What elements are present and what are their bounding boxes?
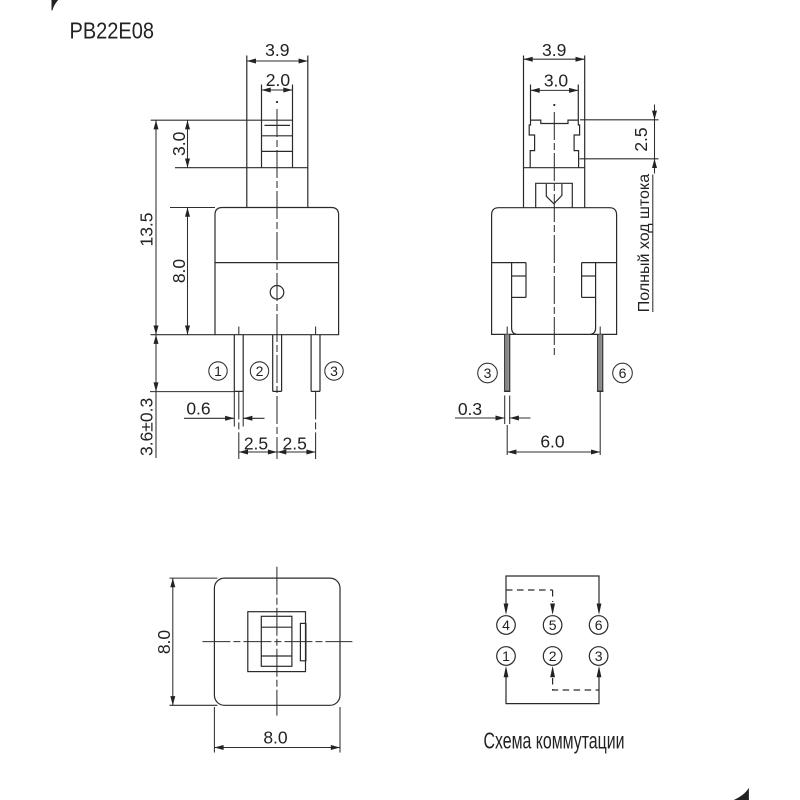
svg-text:6: 6 [619, 365, 627, 381]
svg-text:4: 4 [502, 617, 510, 633]
svg-text:1: 1 [502, 648, 510, 664]
svg-text:3.0: 3.0 [169, 131, 189, 156]
svg-text:3.9: 3.9 [265, 40, 289, 60]
svg-text:3.6±0.3: 3.6±0.3 [136, 398, 156, 456]
svg-text:PB22E08: PB22E08 [70, 18, 155, 44]
svg-text:Полный ход штока: Полный ход штока [636, 174, 653, 312]
svg-text:1: 1 [214, 363, 222, 379]
svg-text:6: 6 [595, 617, 603, 633]
svg-text:2: 2 [256, 363, 264, 379]
svg-text:2: 2 [549, 648, 557, 664]
svg-text:3.0: 3.0 [544, 70, 569, 90]
svg-text:2.0: 2.0 [266, 70, 291, 90]
svg-text:2.5: 2.5 [244, 434, 268, 454]
svg-text:8.0: 8.0 [154, 630, 174, 655]
svg-text:6.0: 6.0 [540, 432, 565, 452]
svg-text:5: 5 [549, 617, 557, 633]
svg-text:3: 3 [484, 365, 492, 381]
svg-text:2.5: 2.5 [283, 434, 307, 454]
svg-text:8.0: 8.0 [263, 728, 288, 748]
svg-text:0.3: 0.3 [458, 399, 482, 419]
svg-text:3: 3 [330, 363, 338, 379]
svg-text:13.5: 13.5 [137, 212, 157, 246]
svg-text:Схема коммутации: Схема коммутации [484, 728, 625, 754]
svg-text:0.6: 0.6 [186, 398, 210, 418]
svg-text:3: 3 [595, 648, 603, 664]
svg-text:8.0: 8.0 [169, 259, 189, 284]
svg-text:3.9: 3.9 [542, 40, 566, 60]
svg-text:2.5: 2.5 [631, 127, 651, 151]
